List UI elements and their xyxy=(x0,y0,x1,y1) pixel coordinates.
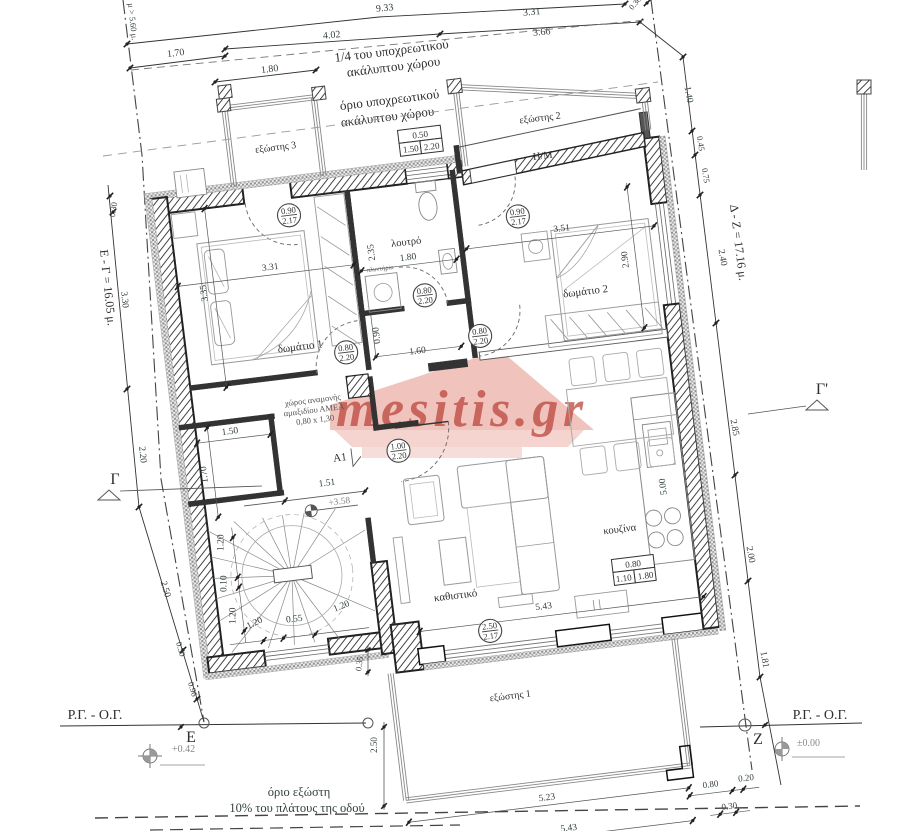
svg-text:0.20: 0.20 xyxy=(738,772,755,784)
svg-text:0.30: 0.30 xyxy=(721,800,738,812)
svg-text:2.17: 2.17 xyxy=(510,216,526,228)
svg-text:5.43: 5.43 xyxy=(535,601,553,613)
svg-text:0.80: 0.80 xyxy=(702,778,719,790)
svg-text:1.51: 1.51 xyxy=(318,478,336,490)
svg-text:1.80: 1.80 xyxy=(637,570,654,582)
svg-text:3.31: 3.31 xyxy=(522,6,541,19)
svg-text:0.80: 0.80 xyxy=(625,558,642,570)
svg-text:1.60: 1.60 xyxy=(409,346,427,358)
svg-text:4.02: 4.02 xyxy=(322,29,341,42)
svg-text:1.50: 1.50 xyxy=(402,143,419,155)
svg-text:0.55: 0.55 xyxy=(285,614,303,626)
svg-text:όριο εξώστη: όριο εξώστη xyxy=(268,785,331,799)
svg-text:1.10: 1.10 xyxy=(615,572,632,584)
svg-text:1.70: 1.70 xyxy=(199,465,211,483)
svg-text:Ρ.Γ. - Ο.Γ.: Ρ.Γ. - Ο.Γ. xyxy=(68,708,123,723)
svg-text:1.70: 1.70 xyxy=(166,47,185,60)
svg-text:2.35: 2.35 xyxy=(366,243,378,261)
svg-text:5.00: 5.00 xyxy=(658,478,670,496)
svg-text:2.20: 2.20 xyxy=(339,351,355,363)
svg-text:Ζ: Ζ xyxy=(753,731,763,748)
svg-text:3.66: 3.66 xyxy=(532,26,551,39)
svg-text:3.31: 3.31 xyxy=(261,262,279,274)
svg-text:+0.42: +0.42 xyxy=(172,744,195,755)
svg-text:±0.00: ±0.00 xyxy=(797,738,820,749)
svg-text:3.51: 3.51 xyxy=(553,223,571,235)
svg-text:Γ': Γ' xyxy=(816,381,828,398)
svg-text:5.43: 5.43 xyxy=(560,823,578,831)
svg-text:1.20: 1.20 xyxy=(228,607,238,624)
svg-text:0.90: 0.90 xyxy=(371,326,383,344)
svg-text:5.23: 5.23 xyxy=(538,792,556,804)
svg-text:9.33: 9.33 xyxy=(375,2,394,15)
svg-text:1.50: 1.50 xyxy=(221,426,239,438)
svg-text:2.20: 2.20 xyxy=(473,335,489,347)
svg-text:0.50: 0.50 xyxy=(412,129,429,141)
svg-text:2.20: 2.20 xyxy=(417,294,433,306)
svg-text:0.10: 0.10 xyxy=(219,575,229,592)
svg-text:2.17: 2.17 xyxy=(282,214,298,226)
svg-text:2.20: 2.20 xyxy=(391,450,407,462)
svg-text:2.20: 2.20 xyxy=(136,446,148,464)
svg-text:Α1: Α1 xyxy=(333,451,348,465)
svg-text:1.80: 1.80 xyxy=(260,63,279,76)
svg-text:1.20: 1.20 xyxy=(216,534,226,551)
svg-text:Ρ.Γ. - Ο.Γ.: Ρ.Γ. - Ο.Γ. xyxy=(793,708,848,723)
svg-text:10% του πλάτους της οδού: 10% του πλάτους της οδού xyxy=(229,801,364,815)
svg-text:2.90: 2.90 xyxy=(620,250,632,268)
svg-text:1.80: 1.80 xyxy=(399,252,417,264)
svg-text:3.30: 3.30 xyxy=(118,291,130,309)
svg-text:2.50: 2.50 xyxy=(369,737,379,753)
svg-text:3.35: 3.35 xyxy=(199,284,211,302)
svg-text:2.20: 2.20 xyxy=(423,140,440,152)
svg-text:2.17: 2.17 xyxy=(483,630,499,642)
svg-text:0.35: 0.35 xyxy=(353,656,365,672)
svg-text:Γ: Γ xyxy=(110,471,119,488)
